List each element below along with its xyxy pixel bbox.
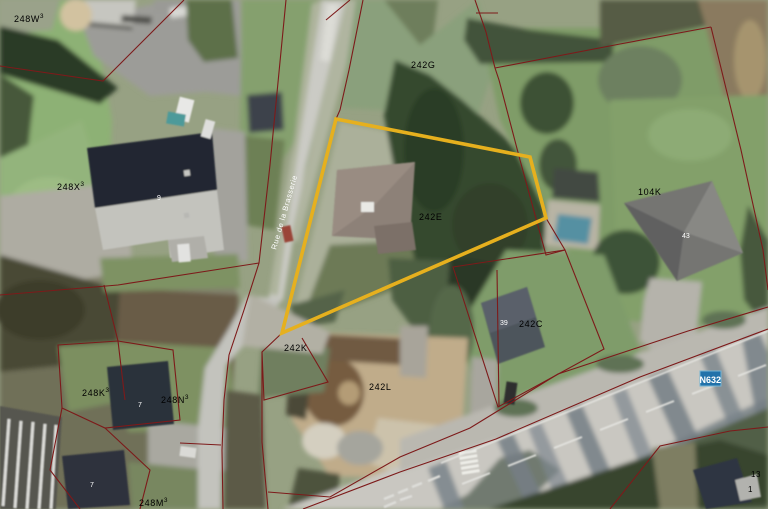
svg-text:242K: 242K (284, 343, 307, 353)
svg-text:N632: N632 (700, 375, 722, 385)
svg-text:248M3: 248M3 (139, 497, 168, 508)
svg-text:43: 43 (682, 233, 690, 240)
svg-text:39: 39 (500, 320, 508, 327)
svg-text:104K: 104K (638, 187, 661, 197)
svg-text:13: 13 (751, 470, 761, 479)
svg-text:242E: 242E (419, 212, 442, 222)
svg-text:7: 7 (138, 402, 142, 409)
svg-text:242C: 242C (519, 319, 543, 329)
svg-text:242G: 242G (411, 60, 435, 70)
svg-text:242L: 242L (369, 382, 391, 392)
svg-text:9: 9 (157, 195, 161, 202)
svg-text:248W3: 248W3 (14, 13, 44, 24)
svg-text:248N3: 248N3 (161, 394, 189, 405)
svg-text:1: 1 (748, 485, 753, 494)
svg-text:7: 7 (90, 482, 94, 489)
